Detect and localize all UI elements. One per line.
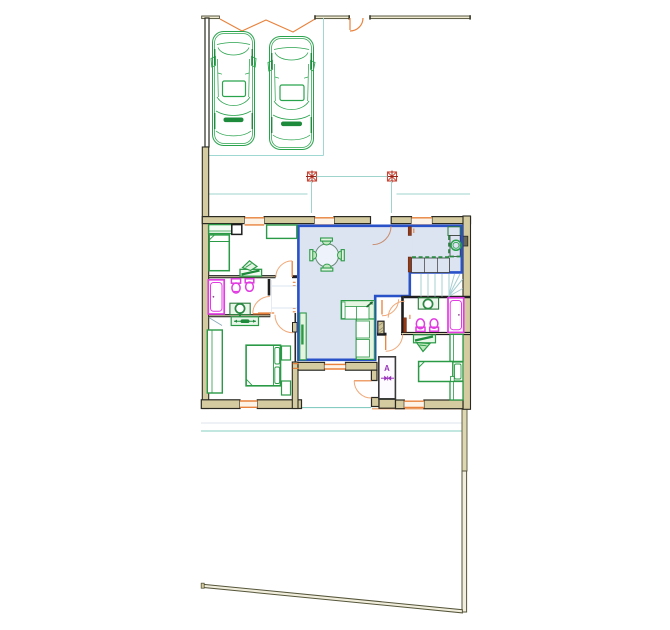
svg-text:A: A [384,364,390,373]
